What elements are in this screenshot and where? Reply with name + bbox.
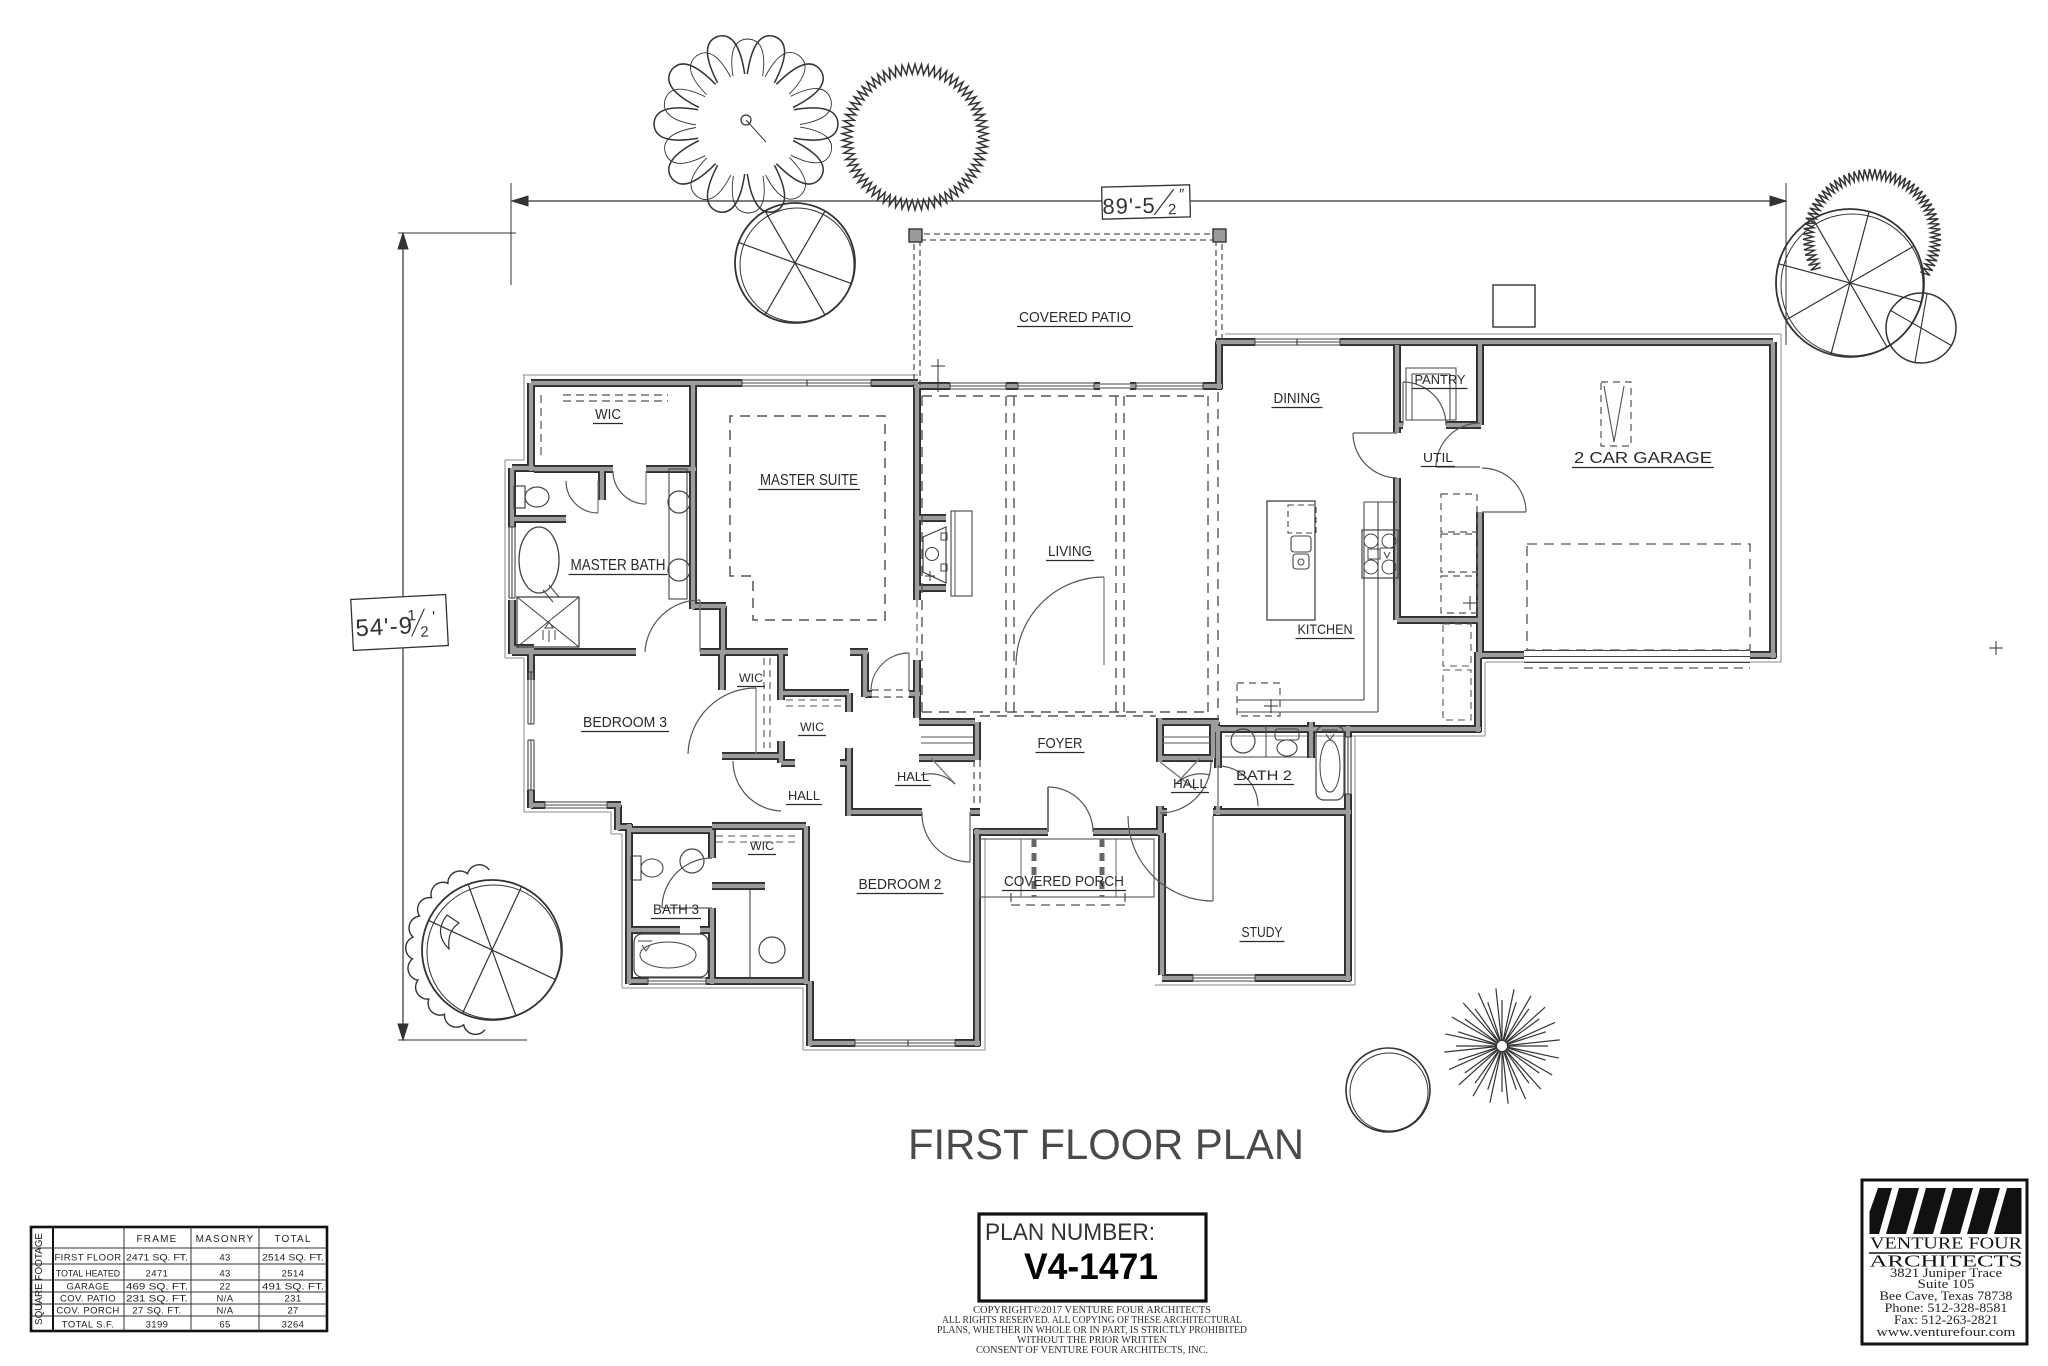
- svg-text:CONSENT OF VENTURE FOUR ARCHIT: CONSENT OF VENTURE FOUR ARCHITECTS, INC.: [976, 1345, 1208, 1356]
- svg-text:www.venturefour.com: www.venturefour.com: [1877, 1325, 2016, 1339]
- svg-text:22: 22: [219, 1282, 230, 1293]
- svg-text:2514 SQ. FT.: 2514 SQ. FT.: [262, 1253, 324, 1264]
- svg-text:2471 SQ. FT.: 2471 SQ. FT.: [126, 1253, 188, 1264]
- svg-text:HALL: HALL: [788, 788, 820, 803]
- svg-text:BEDROOM 2: BEDROOM 2: [859, 876, 942, 893]
- svg-text:27: 27: [287, 1306, 298, 1317]
- svg-text:COV. PORCH: COV. PORCH: [56, 1306, 119, 1317]
- svg-text:43: 43: [219, 1253, 230, 1264]
- svg-text:COV. PATIO: COV. PATIO: [60, 1294, 116, 1305]
- svg-text:DINING: DINING: [1274, 390, 1321, 407]
- svg-text:WIC: WIC: [595, 406, 621, 423]
- svg-text:MASONRY: MASONRY: [196, 1234, 255, 1245]
- svg-text:FOYER: FOYER: [1038, 735, 1083, 752]
- svg-text:3199: 3199: [146, 1320, 169, 1331]
- svg-text:BEDROOM 3: BEDROOM 3: [583, 714, 667, 731]
- svg-text:89'-5: 89'-5: [1102, 193, 1156, 219]
- svg-text:KITCHEN: KITCHEN: [1298, 621, 1353, 637]
- svg-text:TOTAL S.F.: TOTAL S.F.: [62, 1320, 114, 1331]
- svg-text:469 SQ. FT.: 469 SQ. FT.: [126, 1282, 188, 1293]
- svg-text:2514: 2514: [282, 1269, 305, 1280]
- svg-text:TOTAL: TOTAL: [274, 1234, 311, 1245]
- svg-text:491 SQ. FT.: 491 SQ. FT.: [262, 1282, 324, 1293]
- svg-text:MASTER BATH: MASTER BATH: [571, 557, 666, 574]
- svg-text:54'-9: 54'-9: [355, 612, 414, 642]
- svg-text:3264: 3264: [282, 1320, 305, 1331]
- svg-text:PANTRY: PANTRY: [1415, 372, 1466, 387]
- svg-text:N/A: N/A: [216, 1294, 233, 1305]
- svg-text:2471: 2471: [146, 1269, 169, 1280]
- svg-text:HALL: HALL: [1173, 776, 1207, 791]
- svg-text:SQUARE FOOTAGE: SQUARE FOOTAGE: [34, 1233, 45, 1325]
- svg-text:LIVING: LIVING: [1048, 543, 1092, 560]
- svg-text:FIRST FLOOR: FIRST FLOOR: [54, 1253, 121, 1264]
- svg-text:GARAGE: GARAGE: [66, 1282, 109, 1293]
- svg-text:27 SQ. FT.: 27 SQ. FT.: [132, 1306, 181, 1317]
- svg-text:BATH 2: BATH 2: [1236, 767, 1292, 783]
- svg-text:WIC: WIC: [800, 720, 824, 734]
- svg-text:231: 231: [284, 1294, 301, 1305]
- svg-text:231 SQ. FT.: 231 SQ. FT.: [126, 1294, 188, 1305]
- svg-text:2 CAR GARAGE: 2 CAR GARAGE: [1574, 450, 1712, 467]
- svg-text:N/A: N/A: [216, 1306, 233, 1317]
- svg-text:HALL: HALL: [897, 769, 929, 784]
- svg-text:COVERED PATIO: COVERED PATIO: [1019, 309, 1131, 326]
- svg-text:43: 43: [219, 1269, 230, 1280]
- svg-text:65: 65: [219, 1320, 230, 1331]
- svg-text:WIC: WIC: [739, 671, 763, 685]
- svg-text:BATH 3: BATH 3: [653, 901, 699, 917]
- svg-text:MASTER SUITE: MASTER SUITE: [760, 472, 858, 489]
- svg-text:WIC: WIC: [750, 839, 774, 853]
- svg-text:FIRST FLOOR PLAN: FIRST FLOOR PLAN: [908, 1121, 1304, 1169]
- svg-text:FRAME: FRAME: [137, 1234, 178, 1245]
- svg-text:2: 2: [1168, 201, 1177, 218]
- svg-text:VENTURE FOUR: VENTURE FOUR: [1870, 1234, 2022, 1253]
- svg-text:2: 2: [420, 623, 429, 640]
- svg-text:UTIL: UTIL: [1423, 450, 1453, 465]
- svg-text:PLAN NUMBER:: PLAN NUMBER:: [985, 1219, 1155, 1246]
- svg-text:STUDY: STUDY: [1242, 924, 1283, 941]
- svg-text:COVERED PORCH: COVERED PORCH: [1004, 873, 1124, 890]
- svg-text:1: 1: [407, 607, 416, 624]
- svg-text:V4-1471: V4-1471: [1024, 1246, 1158, 1287]
- svg-text:TOTAL HEATED: TOTAL HEATED: [56, 1269, 120, 1280]
